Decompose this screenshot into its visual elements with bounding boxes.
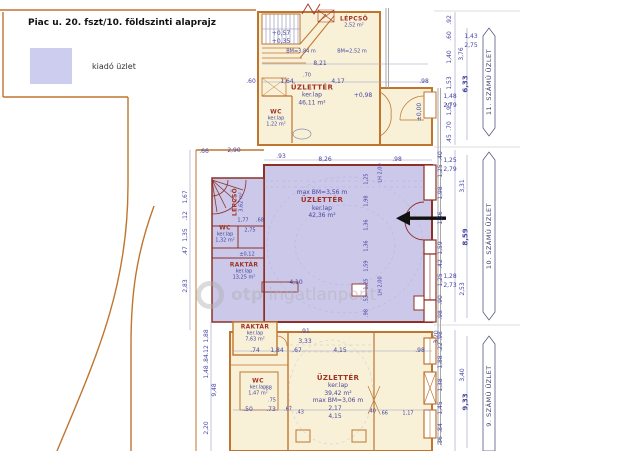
top-unit-walls bbox=[258, 12, 436, 145]
page-title-address: Piac u. 20. fszt/10. bbox=[28, 18, 122, 28]
legend-highlight-swatch bbox=[30, 48, 72, 84]
bottom-unit-walls bbox=[230, 322, 436, 451]
page-title-plan-type: földszinti alaprajz bbox=[125, 18, 216, 28]
floorplan-page: Piac u. 20. fszt/10. földszinti alaprajz… bbox=[0, 0, 640, 451]
legend: Piac u. 20. fszt/10. földszinti alaprajz… bbox=[28, 18, 216, 28]
watermark: otp ingatlanpont bbox=[196, 281, 376, 309]
watermark-text: otp ingatlanpont bbox=[231, 285, 376, 305]
watermark-logo-icon bbox=[196, 281, 224, 309]
watermark-text-bold: otp bbox=[231, 285, 263, 305]
unit-label-bracket bbox=[483, 28, 495, 451]
legend-swatch-label: kiadó üzlet bbox=[92, 62, 136, 71]
page-title: Piac u. 20. fszt/10. földszinti alaprajz bbox=[28, 18, 216, 28]
watermark-text-rest: ingatlanpont bbox=[268, 285, 376, 305]
